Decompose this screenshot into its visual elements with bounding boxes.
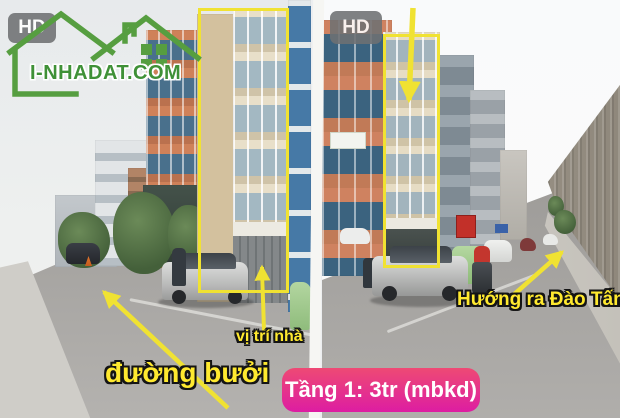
white-van [340,228,370,244]
dark-car [66,243,100,264]
direction-label: Hướng ra Đào Tấn [457,289,620,311]
blue-shop-sign [495,224,508,233]
distant-car [543,234,558,245]
wheel [382,286,397,301]
hd-quality-badge-right: HD [330,11,382,44]
distant-car [520,238,536,251]
pedestrian [172,248,186,286]
wheel [172,290,186,304]
blue-glass-building [288,0,311,312]
right-photo [322,0,620,418]
brand-logo-text: I-NHADAT.COM [30,62,181,85]
distant-tree [554,210,576,234]
red-shop-sign [456,215,476,238]
price-badge: Tầng 1: 3tr (mbkd) [282,368,480,412]
house-position-label: vị trí nhà [236,328,303,346]
green-car-left [290,282,311,330]
house-roof-left [10,14,112,52]
street-name-label: đường bưởi [105,357,269,389]
brand-logo-houses-icon [4,4,214,104]
highlight-box-right [383,34,440,268]
wheel [442,286,457,301]
listing-photo-collage: vị trí nhà đường bưởi Hướng ra Đào Tấn T… [0,0,620,418]
shop-sign-white [330,132,366,149]
